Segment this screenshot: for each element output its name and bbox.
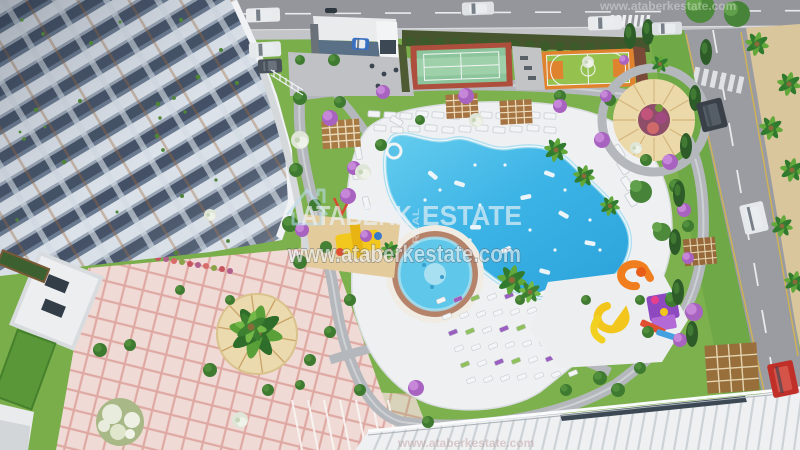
svg-text:www.ataberkestate.com: www.ataberkestate.com bbox=[287, 241, 521, 268]
svg-text:REAL: REAL bbox=[411, 207, 421, 244]
svg-text:www.ataberkestate.com: www.ataberkestate.com bbox=[397, 436, 534, 450]
svg-text:ATABERK: ATABERK bbox=[301, 200, 412, 231]
svg-text:ESTATE: ESTATE bbox=[422, 200, 522, 231]
svg-text:www.ataberkestate.com: www.ataberkestate.com bbox=[599, 0, 736, 13]
